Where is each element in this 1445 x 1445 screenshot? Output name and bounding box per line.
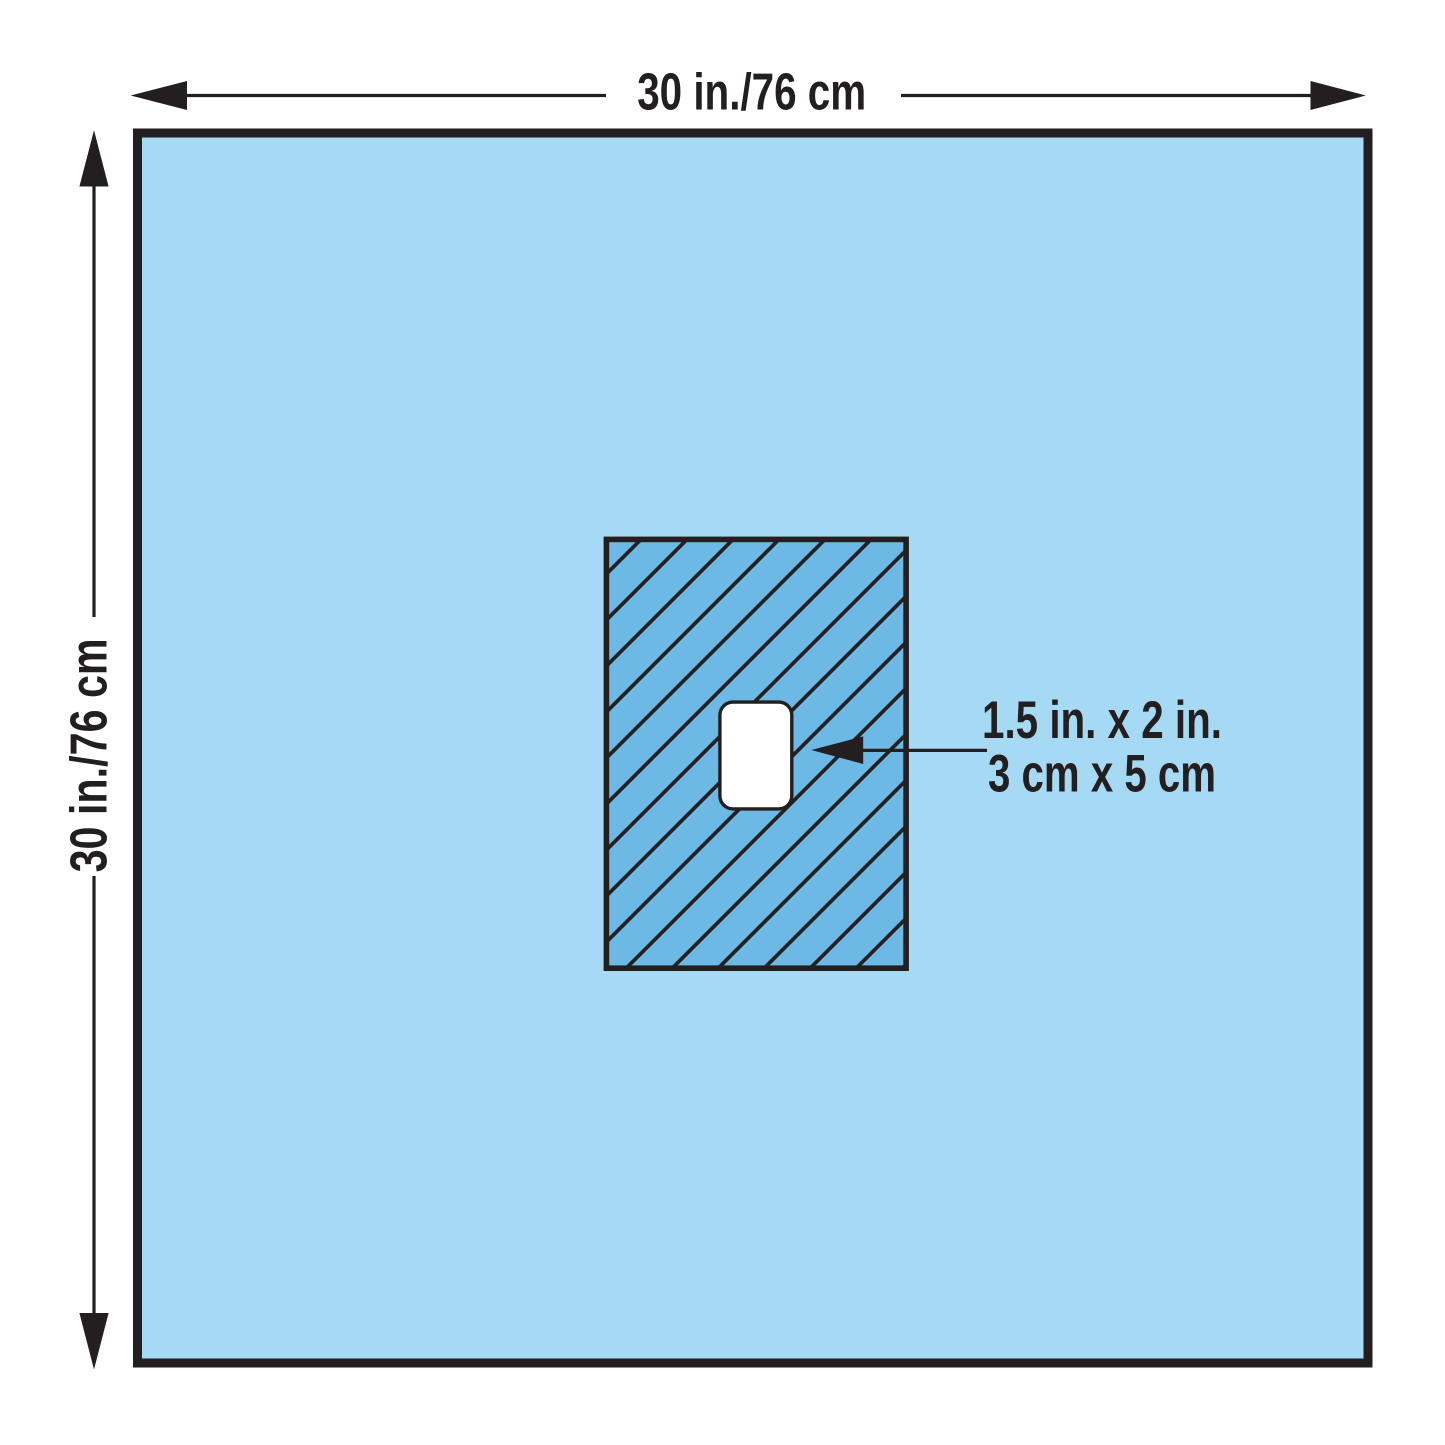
svg-text:1.5 in. x 2 in.: 1.5 in. x 2 in. (982, 691, 1222, 750)
svg-text:3 cm x 5 cm: 3 cm x 5 cm (988, 745, 1216, 804)
svg-text:30 in./76 cm: 30 in./76 cm (637, 62, 866, 120)
svg-text:30 in./76 cm: 30 in./76 cm (59, 638, 117, 872)
